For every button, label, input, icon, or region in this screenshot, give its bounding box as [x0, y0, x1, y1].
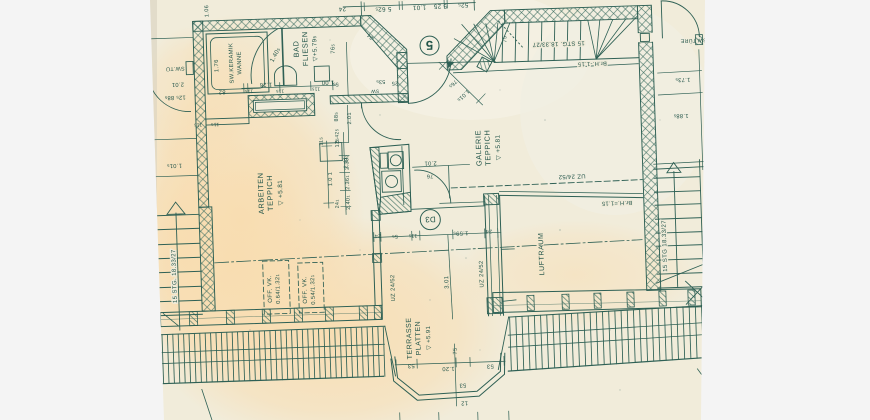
svg-text:SW: SW: [371, 88, 380, 94]
svg-text:82: 82: [218, 88, 225, 94]
svg-text:SW.TÜRE: SW.TÜRE: [680, 37, 707, 45]
svg-text:76: 76: [426, 173, 433, 179]
svg-text:D3: D3: [425, 215, 436, 224]
svg-text:Br.H.-1.15: Br.H.-1.15: [578, 60, 607, 67]
svg-text:12: 12: [461, 399, 468, 405]
svg-text:TEPPICH: TEPPICH: [265, 175, 275, 212]
svg-text:24: 24: [485, 228, 492, 234]
svg-text:0.64/1.321: 0.64/1.321: [275, 273, 282, 304]
svg-text:OFF. VK.: OFF. VK.: [267, 275, 274, 303]
svg-text:▽ +5.81: ▽ +5.81: [277, 180, 285, 206]
svg-text:1.06: 1.06: [204, 5, 210, 18]
svg-text:1.26: 1.26: [259, 81, 272, 87]
svg-text:24: 24: [374, 232, 381, 238]
svg-text:1.20: 1.20: [442, 365, 455, 371]
svg-text:53: 53: [408, 362, 415, 368]
svg-text:1.00: 1.00: [321, 79, 334, 85]
svg-text:24: 24: [338, 5, 346, 11]
svg-text:5 25: 5 25: [433, 2, 447, 9]
svg-text:75: 75: [502, 36, 508, 43]
svg-text:5: 5: [426, 38, 434, 53]
svg-text:1.76: 1.76: [214, 59, 220, 72]
svg-text:2.01: 2.01: [424, 159, 437, 165]
svg-text:▽ +5.81: ▽ +5.81: [495, 134, 503, 160]
svg-text:0.54/1.321: 0.54/1.321: [310, 274, 317, 305]
svg-text:2.01: 2.01: [171, 81, 184, 87]
svg-text:2.01: 2.01: [347, 112, 353, 125]
svg-text:TERRASSE: TERRASSE: [406, 317, 414, 359]
svg-text:FLIESEN: FLIESEN: [300, 31, 310, 66]
svg-text:125 885: 125 885: [164, 94, 186, 101]
svg-text:LUFTRAUM: LUFTRAUM: [538, 232, 546, 275]
svg-text:UZ 24/52: UZ 24/52: [479, 260, 486, 287]
svg-text:▽ +5.91: ▽ +5.91: [426, 325, 433, 350]
svg-text:WANNE: WANNE: [237, 51, 244, 75]
svg-text:▽+5.795: ▽+5.795: [311, 35, 319, 61]
svg-text:UZ 24/52: UZ 24/52: [390, 274, 397, 301]
svg-text:75: 75: [453, 347, 459, 354]
svg-text:3.01: 3.01: [444, 275, 450, 289]
svg-text:OFF. VK.: OFF. VK.: [302, 276, 309, 304]
svg-text:PLATTEN: PLATTEN: [415, 321, 423, 356]
svg-text:25: 25: [391, 80, 398, 86]
svg-text:TEPPICH: TEPPICH: [482, 129, 492, 166]
svg-text:Br.H.=1.15: Br.H.=1.15: [601, 199, 632, 206]
svg-text:1.01: 1.01: [412, 3, 426, 10]
svg-text:53: 53: [487, 363, 494, 369]
svg-text:53: 53: [459, 381, 466, 387]
svg-text:1.0 1: 1.0 1: [328, 172, 334, 186]
svg-text:UZ 24/52: UZ 24/52: [558, 172, 586, 179]
svg-text:SW.TÜ: SW.TÜ: [166, 65, 185, 73]
